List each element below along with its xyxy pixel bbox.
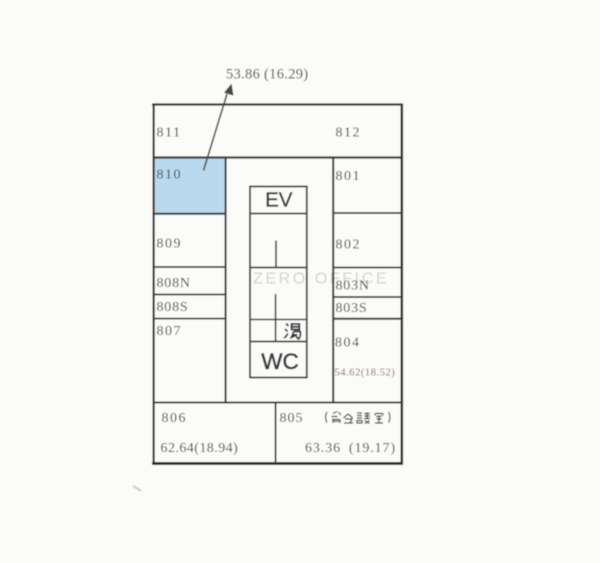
svg-text:810: 810 bbox=[157, 168, 183, 183]
svg-text:807: 807 bbox=[157, 324, 183, 339]
svg-text:803N: 803N bbox=[336, 279, 370, 294]
svg-text:54.62(18.52): 54.62(18.52) bbox=[335, 368, 396, 379]
svg-text:806: 806 bbox=[162, 411, 188, 426]
svg-text:53.86 (16.29): 53.86 (16.29) bbox=[226, 67, 308, 83]
svg-text:EV: EV bbox=[265, 189, 293, 212]
svg-text:808N: 808N bbox=[157, 276, 191, 291]
svg-text:812: 812 bbox=[336, 126, 362, 141]
svg-text:805: 805 bbox=[280, 411, 304, 426]
svg-text:802: 802 bbox=[336, 238, 362, 253]
svg-text:808S: 808S bbox=[157, 300, 189, 315]
svg-text:WC: WC bbox=[261, 349, 299, 374]
svg-text:811: 811 bbox=[157, 126, 182, 141]
svg-text:62.64(18.94): 62.64(18.94) bbox=[161, 441, 239, 456]
svg-text:804: 804 bbox=[335, 336, 361, 351]
svg-text:63.36 (19.17): 63.36 (19.17) bbox=[305, 441, 396, 456]
svg-text:809: 809 bbox=[157, 237, 183, 252]
svg-text:803S: 803S bbox=[336, 301, 368, 316]
svg-text:801: 801 bbox=[336, 169, 362, 184]
